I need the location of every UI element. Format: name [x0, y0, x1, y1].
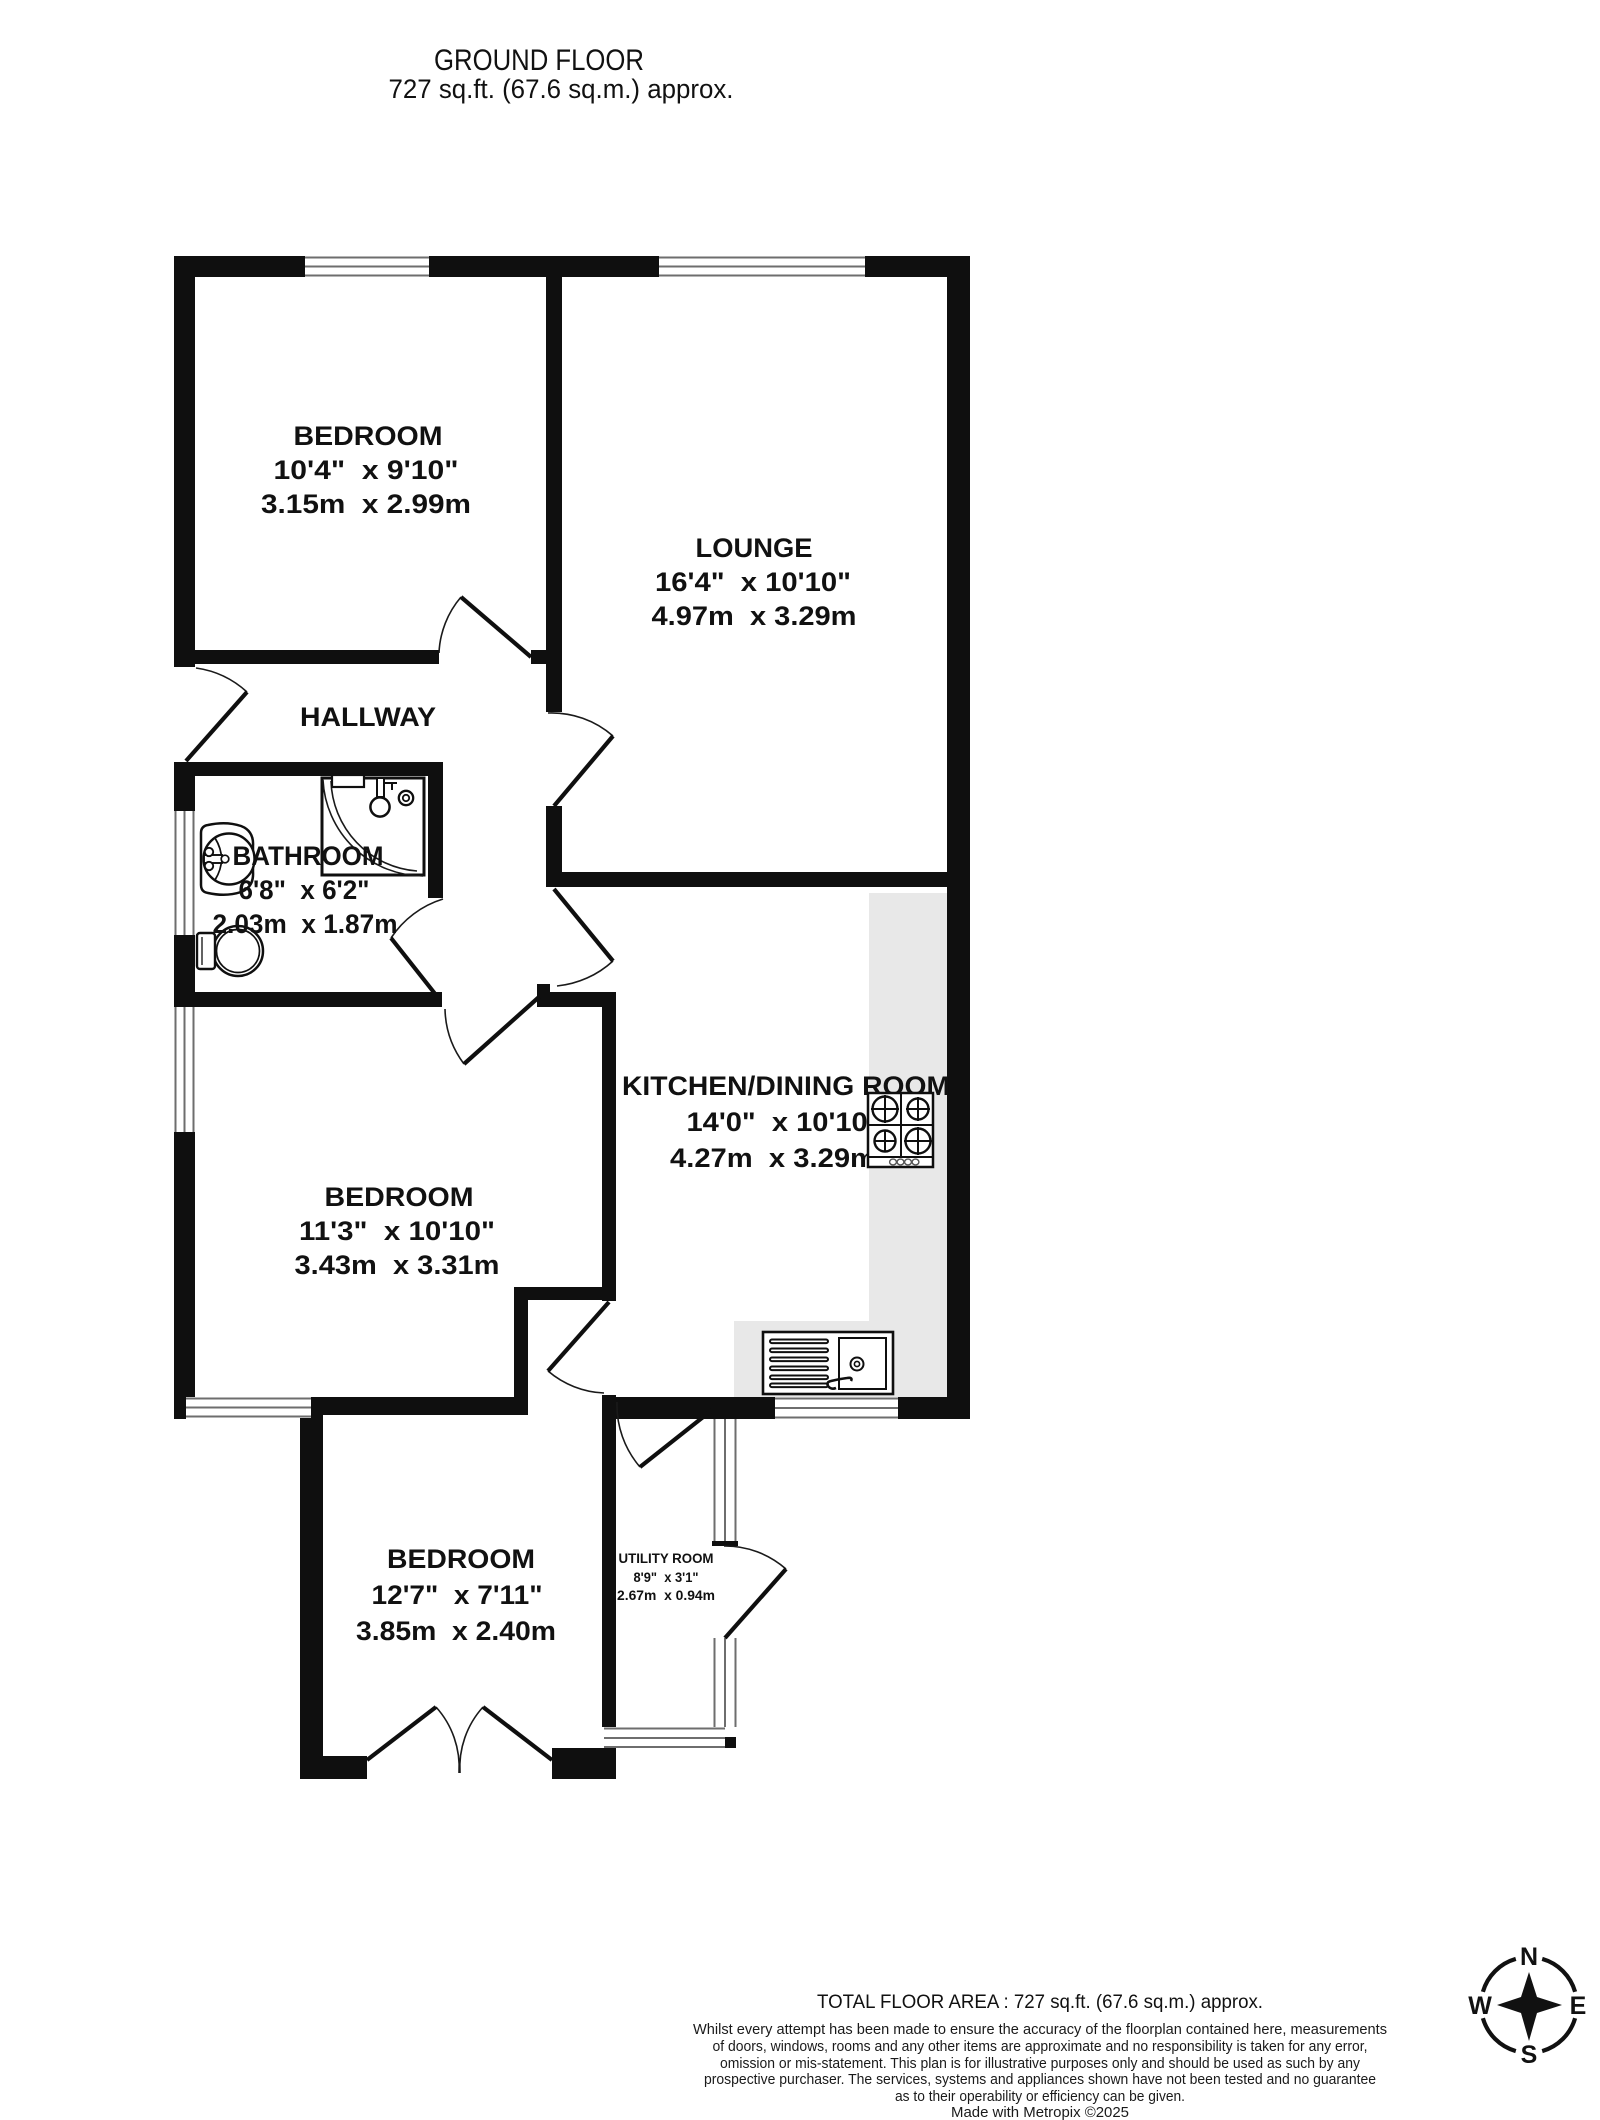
- svg-text:2.03m x 1.87m: 2.03m x 1.87m: [213, 909, 398, 939]
- svg-text:6'8" x 6'2": 6'8" x 6'2": [239, 875, 370, 905]
- svg-text:11'3" x 10'10": 11'3" x 10'10": [299, 1216, 495, 1246]
- svg-text:N: N: [1520, 1943, 1538, 1971]
- svg-text:of doors, windows, rooms and a: of doors, windows, rooms and any other i…: [713, 2038, 1368, 2055]
- svg-text:TOTAL FLOOR AREA : 727 sq.ft.: TOTAL FLOOR AREA : 727 sq.ft. (67.6 sq.m…: [817, 1991, 1263, 2013]
- svg-text:UTILITY ROOM: UTILITY ROOM: [619, 1551, 714, 1566]
- svg-text:E: E: [1570, 1992, 1587, 2020]
- svg-text:3.85m x 2.40m: 3.85m x 2.40m: [356, 1616, 556, 1646]
- svg-text:Whilst every attempt has been: Whilst every attempt has been made to en…: [693, 2021, 1387, 2038]
- svg-text:12'7" x 7'11": 12'7" x 7'11": [372, 1580, 543, 1610]
- svg-text:as to their operability or eff: as to their operability or efficiency ca…: [895, 2088, 1185, 2105]
- svg-text:BEDROOM: BEDROOM: [387, 1544, 535, 1574]
- svg-text:10'4" x 9'10": 10'4" x 9'10": [274, 455, 459, 485]
- svg-text:3.43m x 3.31m: 3.43m x 3.31m: [295, 1250, 500, 1280]
- svg-text:S: S: [1521, 2041, 1538, 2069]
- svg-text:4.97m x 3.29m: 4.97m x 3.29m: [652, 601, 857, 631]
- svg-text:Made with Metropix ©2025: Made with Metropix ©2025: [951, 2104, 1129, 2120]
- svg-text:GROUND FLOOR: GROUND FLOOR: [434, 44, 644, 77]
- svg-text:4.27m x 3.29m: 4.27m x 3.29m: [670, 1143, 876, 1173]
- svg-text:BEDROOM: BEDROOM: [325, 1182, 474, 1212]
- svg-text:W: W: [1468, 1992, 1492, 2020]
- svg-text:BEDROOM: BEDROOM: [294, 421, 443, 451]
- svg-text:16'4" x 10'10": 16'4" x 10'10": [655, 567, 851, 597]
- svg-text:LOUNGE: LOUNGE: [696, 533, 813, 563]
- svg-text:14'0" x 10'10": 14'0" x 10'10": [687, 1107, 882, 1137]
- svg-text:727 sq.ft. (67.6 sq.m.) approx: 727 sq.ft. (67.6 sq.m.) approx.: [389, 74, 734, 104]
- svg-text:8'9" x 3'1": 8'9" x 3'1": [634, 1570, 699, 1585]
- svg-text:HALLWAY: HALLWAY: [300, 702, 436, 732]
- svg-text:3.15m x 2.99m: 3.15m x 2.99m: [261, 489, 471, 519]
- svg-text:2.67m x 0.94m: 2.67m x 0.94m: [617, 1588, 715, 1603]
- svg-text:prospective purchaser. The ser: prospective purchaser. The services, sys…: [704, 2071, 1376, 2088]
- svg-text:BATHROOM: BATHROOM: [233, 841, 384, 871]
- svg-text:omission or mis-statement. Thi: omission or mis-statement. This plan is …: [720, 2055, 1360, 2072]
